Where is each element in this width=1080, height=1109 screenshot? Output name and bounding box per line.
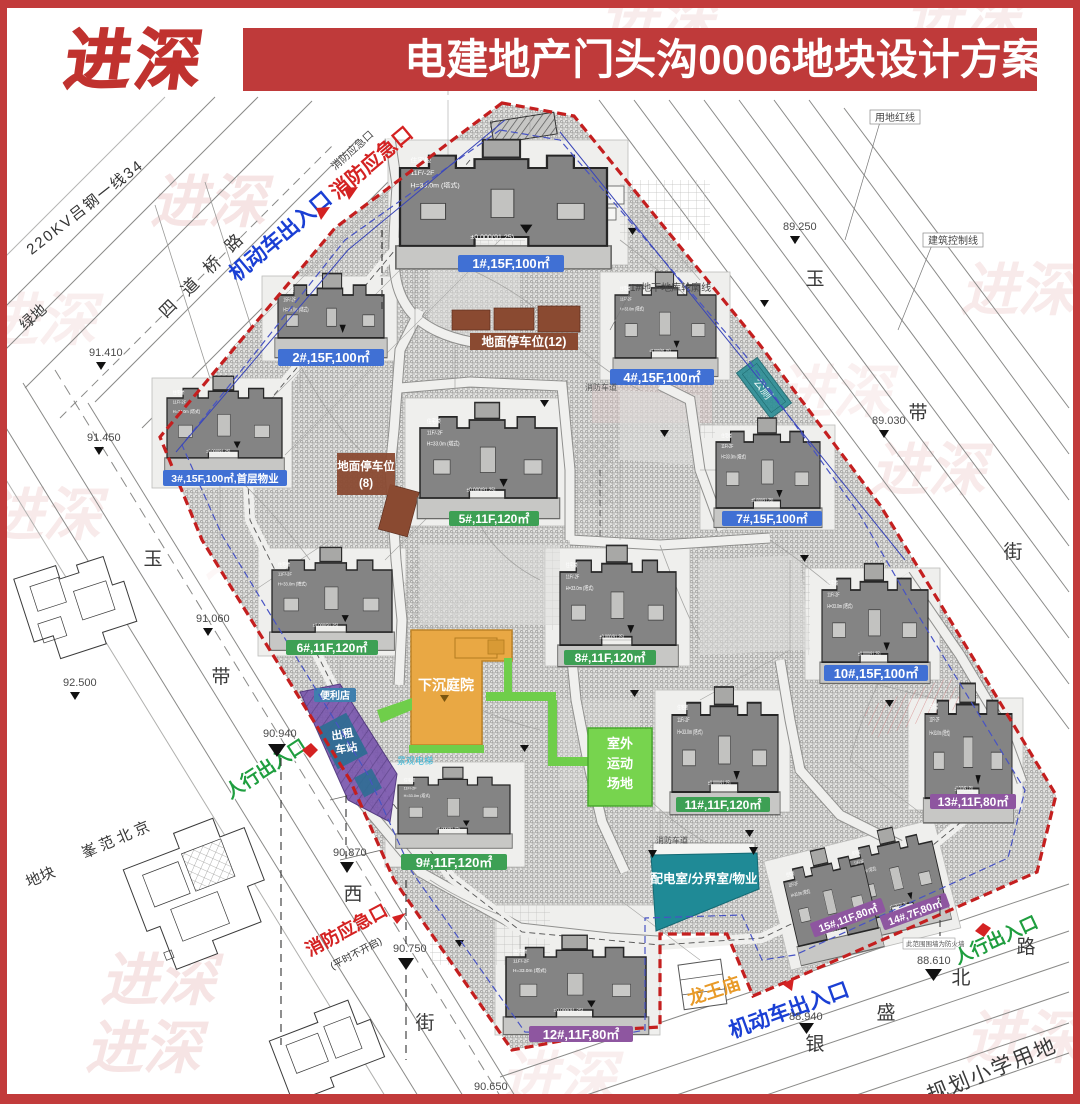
- svg-text:进深: 进深: [870, 438, 994, 503]
- svg-text:91.450: 91.450: [87, 432, 121, 444]
- svg-text:进深: 进深: [0, 483, 109, 548]
- svg-text:89.250: 89.250: [783, 221, 817, 233]
- svg-text:1#,15F,100㎡: 1#,15F,100㎡: [472, 256, 549, 271]
- svg-text:地面停车位: 地面停车位: [337, 459, 395, 473]
- svg-text:91.060: 91.060: [196, 613, 230, 625]
- svg-text:8#,11F,120㎡: 8#,11F,120㎡: [575, 650, 646, 665]
- svg-text:进深: 进深: [150, 170, 274, 235]
- svg-text:运动: 运动: [607, 756, 633, 771]
- svg-text:西: 西: [343, 884, 362, 905]
- svg-text:消防车道: 消防车道: [585, 382, 617, 392]
- svg-text:室外: 室外: [607, 736, 633, 751]
- svg-text:1#地下地库轮廓线: 1#地下地库轮廓线: [630, 281, 711, 294]
- svg-text:88.940: 88.940: [789, 1011, 823, 1023]
- svg-text:91.410: 91.410: [89, 347, 123, 359]
- svg-text:89.030: 89.030: [872, 415, 906, 427]
- svg-text:92.500: 92.500: [63, 677, 97, 689]
- svg-text:12#,11F,80㎡: 12#,11F,80㎡: [543, 1027, 620, 1042]
- svg-text:进深: 进深: [0, 288, 104, 353]
- svg-text:90.650: 90.650: [474, 1081, 508, 1093]
- svg-text:6#,11F,120㎡: 6#,11F,120㎡: [297, 640, 368, 655]
- svg-text:2#,15F,100㎡: 2#,15F,100㎡: [292, 350, 369, 365]
- svg-text:5#,11F,120㎡: 5#,11F,120㎡: [459, 511, 530, 526]
- svg-text:7#,15F,100㎡: 7#,15F,100㎡: [736, 511, 807, 526]
- svg-text:下沉庭院: 下沉庭院: [418, 677, 474, 693]
- svg-text:街: 街: [1003, 541, 1022, 563]
- svg-text:90.870: 90.870: [333, 847, 367, 859]
- svg-text:银: 银: [805, 1033, 824, 1055]
- svg-text:10#,15F,100㎡: 10#,15F,100㎡: [834, 666, 919, 681]
- svg-text:13#,11F,80㎡: 13#,11F,80㎡: [938, 794, 1009, 809]
- svg-text:景观电梯: 景观电梯: [397, 755, 433, 766]
- svg-text:9#,11F,120㎡: 9#,11F,120㎡: [416, 855, 493, 870]
- svg-text:此范围围墙为防火墙: 此范围围墙为防火墙: [906, 939, 965, 948]
- svg-text:路: 路: [1016, 936, 1035, 958]
- svg-text:便利店: 便利店: [320, 689, 350, 702]
- svg-text:玉: 玉: [805, 269, 824, 290]
- svg-text:建筑控制线: 建筑控制线: [928, 234, 978, 247]
- svg-text:11#,11F,120㎡: 11#,11F,120㎡: [685, 797, 762, 812]
- svg-text:进深: 进深: [85, 1016, 209, 1081]
- svg-text:进深: 进深: [60, 24, 210, 98]
- svg-text:消防车道: 消防车道: [656, 835, 688, 845]
- svg-text:(8): (8): [359, 478, 373, 490]
- svg-text:玉: 玉: [143, 549, 162, 570]
- svg-text:进深: 进深: [960, 258, 1080, 323]
- svg-text:88.610: 88.610: [917, 955, 951, 967]
- svg-text:90.750: 90.750: [393, 943, 427, 955]
- svg-text:场地: 场地: [607, 776, 633, 791]
- svg-text:北: 北: [951, 967, 970, 989]
- svg-text:3#,15F,100㎡,首层物业: 3#,15F,100㎡,首层物业: [171, 472, 279, 485]
- svg-text:盛: 盛: [876, 1002, 895, 1024]
- svg-text:电建地产门头沟0006地块设计方案: 电建地产门头沟0006地块设计方案: [404, 36, 1044, 83]
- svg-text:地面停车位(12): 地面停车位(12): [482, 334, 567, 349]
- svg-text:90.940: 90.940: [263, 728, 297, 740]
- svg-text:带: 带: [211, 666, 230, 688]
- svg-text:街: 街: [415, 1012, 434, 1034]
- svg-text:带: 带: [908, 402, 927, 424]
- svg-text:配电室/分界室/物业: 配电室/分界室/物业: [651, 871, 758, 886]
- svg-text:用地红线: 用地红线: [875, 111, 915, 124]
- svg-text:4#,15F,100㎡: 4#,15F,100㎡: [623, 370, 700, 385]
